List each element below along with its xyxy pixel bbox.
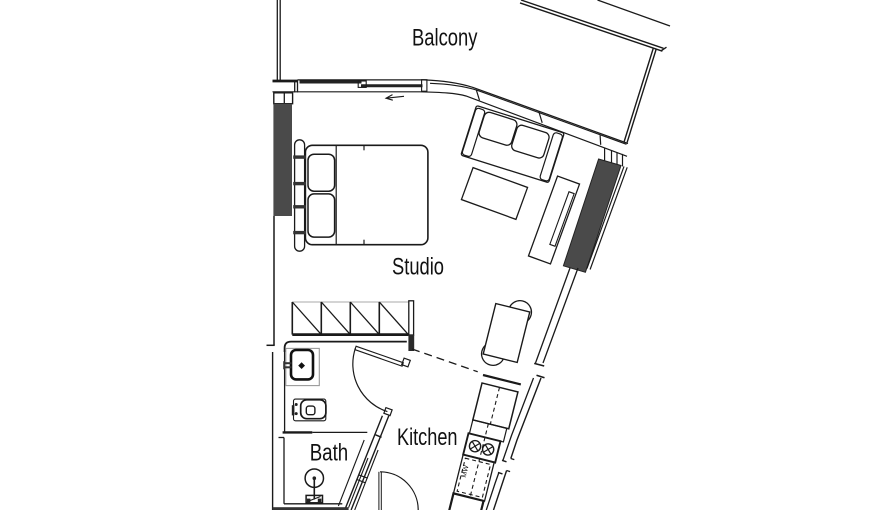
svg-text:Balcony: Balcony xyxy=(412,25,478,52)
svg-text:MW: MW xyxy=(461,464,471,478)
svg-text:Studio: Studio xyxy=(392,253,444,280)
svg-text:Kitchen: Kitchen xyxy=(397,424,458,451)
svg-text:Bath: Bath xyxy=(310,439,349,466)
